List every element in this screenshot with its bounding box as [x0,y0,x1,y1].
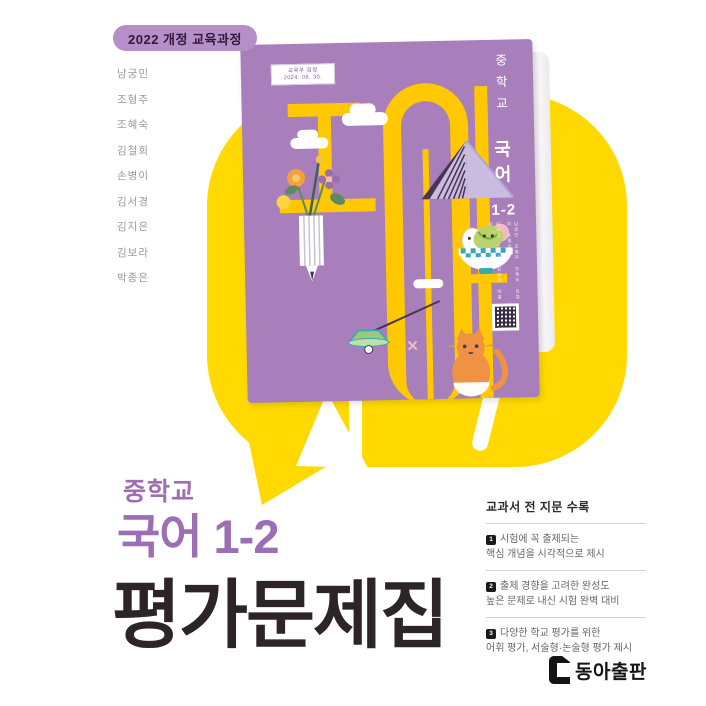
author-name: 김서경 [117,190,149,216]
textbook-cover: 교육부 검정 2024. 08. 30. [240,39,539,403]
author-name: 남궁민 [117,62,149,88]
certification-stamp: 교육부 검정 2024. 08. 30. [271,63,335,85]
feature-number-badge: 3 [486,629,496,639]
author-list: 남궁민 조형주 조혜숙 김철회 손병이 김서경 김지은 김보라 박종은 [117,62,149,292]
cover-author-column: 남궁민 조형주 조혜숙 김철회 손병이 [506,221,522,301]
divider [486,570,646,571]
feature-item: 1시험에 꼭 출제되는 핵심 개념을 시각적으로 제시 [486,532,646,562]
cover-grade-label: 1-2 [486,201,522,219]
author-name: 박종은 [117,266,149,292]
author-name: 김보라 [117,241,149,267]
cloud-icon [413,279,443,289]
cat-icon [446,326,511,399]
feature-text: 어휘 평가, 서술형·논술형 평가 제시 [486,641,646,656]
feature-text: 시험에 꼭 출제되는 [500,534,579,545]
feature-list: 교과서 전 지문 수록 1시험에 꼭 출제되는 핵심 개념을 시각적으로 제시 … [486,498,646,656]
publisher-name: 동아출판 [575,657,647,684]
feature-text: 출제 경향을 고려한 완성도 [500,581,610,592]
feature-number-badge: 1 [486,535,496,545]
cover-subject-label: 국어 [488,139,515,190]
publisher-logo-icon [549,656,571,684]
cover-author-columns: 김서경 김지은 김보라 박종은 남궁민 조형주 조혜숙 김철회 손병이 [488,221,522,302]
curriculum-badge: 2022 개정 교육과정 [113,25,257,51]
cloud-icon [290,137,328,149]
author-name: 손병이 [117,164,149,190]
feature-text: 다양한 학교 평가를 위한 [500,628,600,639]
feature-item: 3다양한 학교 평가를 위한 어휘 평가, 서술형·논술형 평가 제시 [486,626,646,656]
author-name: 조혜숙 [117,113,149,139]
feature-number-badge: 2 [486,582,496,592]
qr-code-icon [492,303,520,331]
curriculum-badge-label: 2022 개정 교육과정 [128,29,242,48]
author-name: 조형주 [117,88,149,114]
feature-text: 핵심 개념을 시각적으로 제시 [486,547,646,562]
divider [486,523,646,524]
cover-school-label: 중학교 [491,53,511,118]
author-name: 김지은 [117,215,149,241]
feature-header: 교과서 전 지문 수록 [486,498,646,515]
book-cover-product-image: 2022 개정 교육과정 남궁민 조형주 조혜숙 김철회 손병이 김서경 김지은… [0,0,706,706]
cloud-icon [342,112,388,126]
lamp-icon [336,297,449,357]
flower-vase-icon [273,153,354,287]
cover-author-column: 김서경 김지은 김보라 박종은 [488,222,504,302]
feature-text: 높은 문제로 내신 시험 완벽 대비 [486,594,646,609]
bubble-white-gap [349,398,362,468]
product-main-title: 평가문제집 [112,554,447,663]
divider [486,617,646,618]
feature-item: 2출제 경향을 고려한 완성도 높은 문제로 내신 시험 완벽 대비 [486,579,646,609]
certification-line2: 2024. 08. 30. [284,74,323,82]
publisher-logo: 동아출판 [549,656,647,684]
author-name: 김철회 [117,139,149,165]
